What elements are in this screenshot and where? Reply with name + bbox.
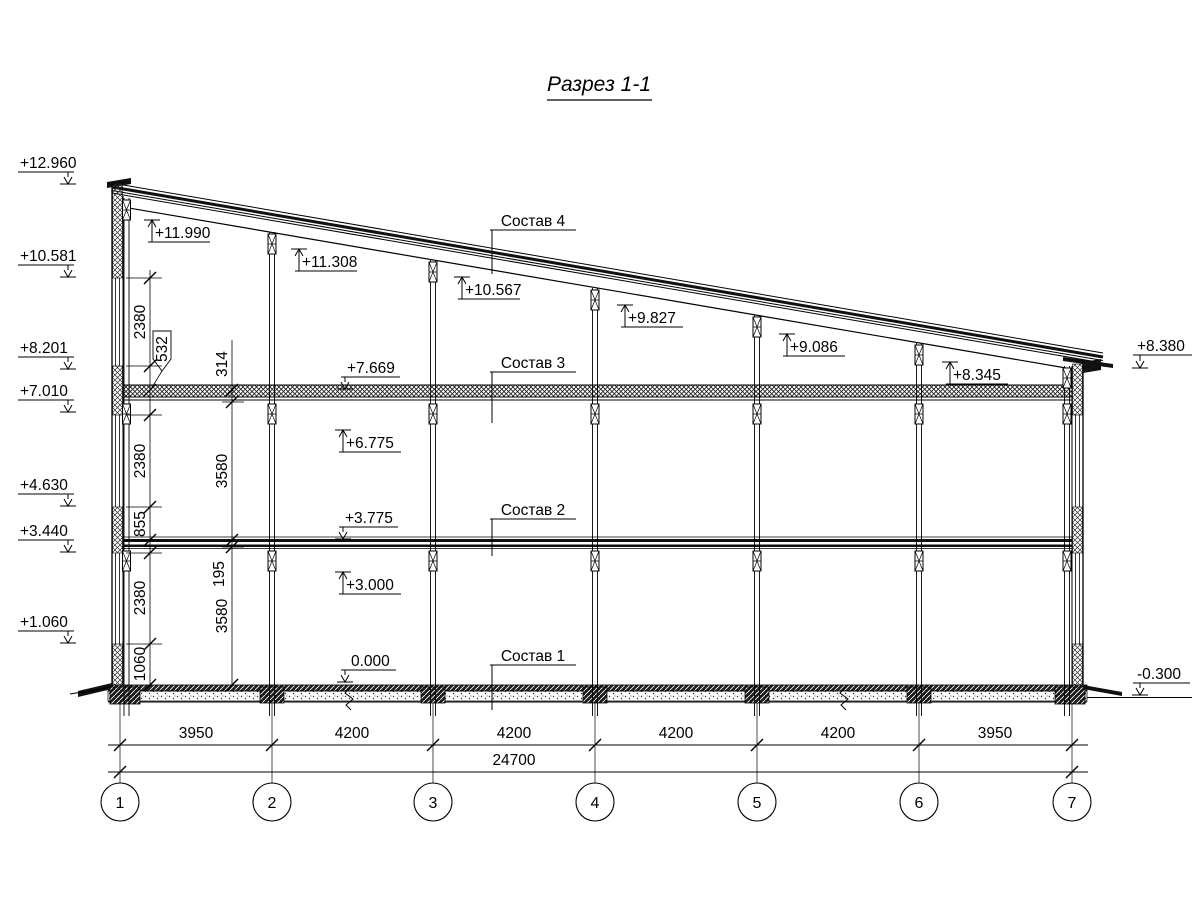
layer-label: Состав 3 [501,355,565,372]
elevation-mark: +6.775 [335,430,401,452]
grid-bubble: 4 [576,783,614,821]
elevation-label: +9.827 [628,310,676,327]
elevation-label: +7.669 [347,360,395,377]
grid-axis-number: 3 [429,795,438,812]
grid-bubble: 7 [1053,783,1091,821]
elevation-mark: +8.201 [18,340,76,369]
dim-label: 3580 [214,453,231,488]
wall-hatch-segment [1073,507,1083,553]
grid-bubble: 2 [253,783,291,821]
grid-extension-lines [120,703,1072,783]
elevation-label: +8.380 [1137,338,1185,355]
dim-label: 3950 [179,725,214,742]
elevation-mark: +1.060 [18,614,76,643]
dim-label: 195 [211,561,228,587]
elevation-label: +11.990 [155,225,211,242]
elevation-label: 0.000 [351,653,390,670]
page-title: Разрез 1-1 [547,73,651,96]
elevation-mark: +3.775 [335,510,398,539]
column-4 [591,288,599,716]
layer-label: Состав 1 [501,648,565,665]
dim-label: 4200 [659,725,694,742]
dim-label: 2380 [132,580,149,615]
elevation-label: +1.060 [20,614,68,631]
wall-hatch-segment [113,507,123,553]
dim-label: 314 [214,351,231,377]
left-wall [112,183,123,692]
dim-label: 4200 [821,725,856,742]
dim-label: 532 [154,336,171,362]
elevation-label: +6.775 [346,435,394,452]
column-5 [753,315,761,716]
grid-bubble: 1 [101,783,139,821]
dim-flag-532: 532 [151,331,171,389]
wall-hatch-segment [113,183,123,278]
grid-axis-number: 2 [268,795,277,812]
elevation-label: +10.581 [20,248,76,265]
wall-hatch-segment [1073,364,1083,415]
elevation-mark: +10.581 [18,248,76,277]
grid-bubble: 3 [414,783,452,821]
elevation-mark: +12.960 [18,155,77,184]
vertical-dim-chain-1: 2380 532 2380 855 2380 1060 [126,270,171,691]
elevation-label: +4.630 [20,477,68,494]
grid-axis-number: 7 [1068,795,1077,812]
floor-elevation-marks: +7.669 +6.775 +3.775 +3.000 0.000 [335,360,401,682]
elevation-marks-right: +8.380 -0.300 [1132,338,1192,695]
column-3 [429,260,437,716]
ground-slab [70,683,1192,710]
elevation-label: +7.010 [20,383,68,400]
elevation-mark: +7.010 [18,383,76,412]
elevation-mark: +9.827 [617,305,683,327]
layer-label: Состав 4 [501,213,566,230]
layer-label: Состав 2 [501,502,565,519]
column-2 [268,232,276,716]
grid-axis-number: 5 [753,795,762,812]
elevation-label: +12.960 [20,155,77,172]
elevation-mark: -0.300 [1132,666,1190,695]
elevation-mark: +10.567 [454,277,521,299]
dim-label: 3950 [978,725,1013,742]
dim-label: 3580 [214,598,231,633]
column-1 [123,198,131,716]
grid-bubbles: 1 2 3 4 5 6 7 [101,783,1091,821]
bottom-dimensions: 3950 4200 4200 4200 4200 3950 24700 [108,703,1088,783]
elevation-mark: +4.630 [18,477,76,506]
grade-apron-right [1083,685,1122,696]
elevation-label: -0.300 [1137,666,1181,683]
dim-label-total: 24700 [492,752,535,769]
dim-label: 4200 [497,725,532,742]
column-6 [915,343,923,716]
dim-label: 1060 [132,646,149,681]
grid-bubble: 5 [738,783,776,821]
dim-label: 2380 [132,304,149,339]
elevation-mark: +9.086 [779,334,845,356]
elevation-label: +10.567 [465,282,521,299]
elevation-mark: +11.308 [291,249,357,271]
roof-deck-band [112,187,1103,357]
elevation-label: +3.440 [20,523,68,540]
right-wall [1072,360,1083,692]
elevation-mark: +3.440 [18,523,76,552]
elevation-mark: +8.345 [942,362,1008,384]
elevation-label: +9.086 [790,339,838,356]
section-drawing: Разрез 1-1 [0,0,1200,900]
dim-label: 855 [132,511,149,537]
wall-hatch-segment [113,366,123,415]
grid-axis-number: 4 [591,795,600,812]
roof [107,178,1113,373]
grid-axis-number: 1 [116,795,125,812]
elevation-label: +8.201 [20,340,68,357]
elevation-label: +3.775 [345,510,393,527]
elevation-marks-left: +12.960 +10.581 +8.201 +7.010 +4.630 +3.… [18,155,77,643]
dim-label: 4200 [335,725,370,742]
grid-bubble: 6 [900,783,938,821]
dim-label: 2380 [132,443,149,478]
layer-callout: Состав 2 [490,502,576,556]
elevation-mark: 0.000 [337,653,396,682]
window-glazing-left [116,278,120,644]
elevation-label: +8.345 [953,367,1001,384]
elevation-mark: +11.990 [144,220,211,242]
elevation-mark: +8.380 [1132,338,1192,368]
title-block: Разрез 1-1 [547,73,652,100]
drawing-sheet: Разрез 1-1 [0,0,1200,900]
elevation-mark: +3.000 [335,572,401,594]
elevation-label: +11.308 [302,254,357,271]
grid-axis-number: 6 [915,795,924,812]
elevation-label: +3.000 [346,577,394,594]
